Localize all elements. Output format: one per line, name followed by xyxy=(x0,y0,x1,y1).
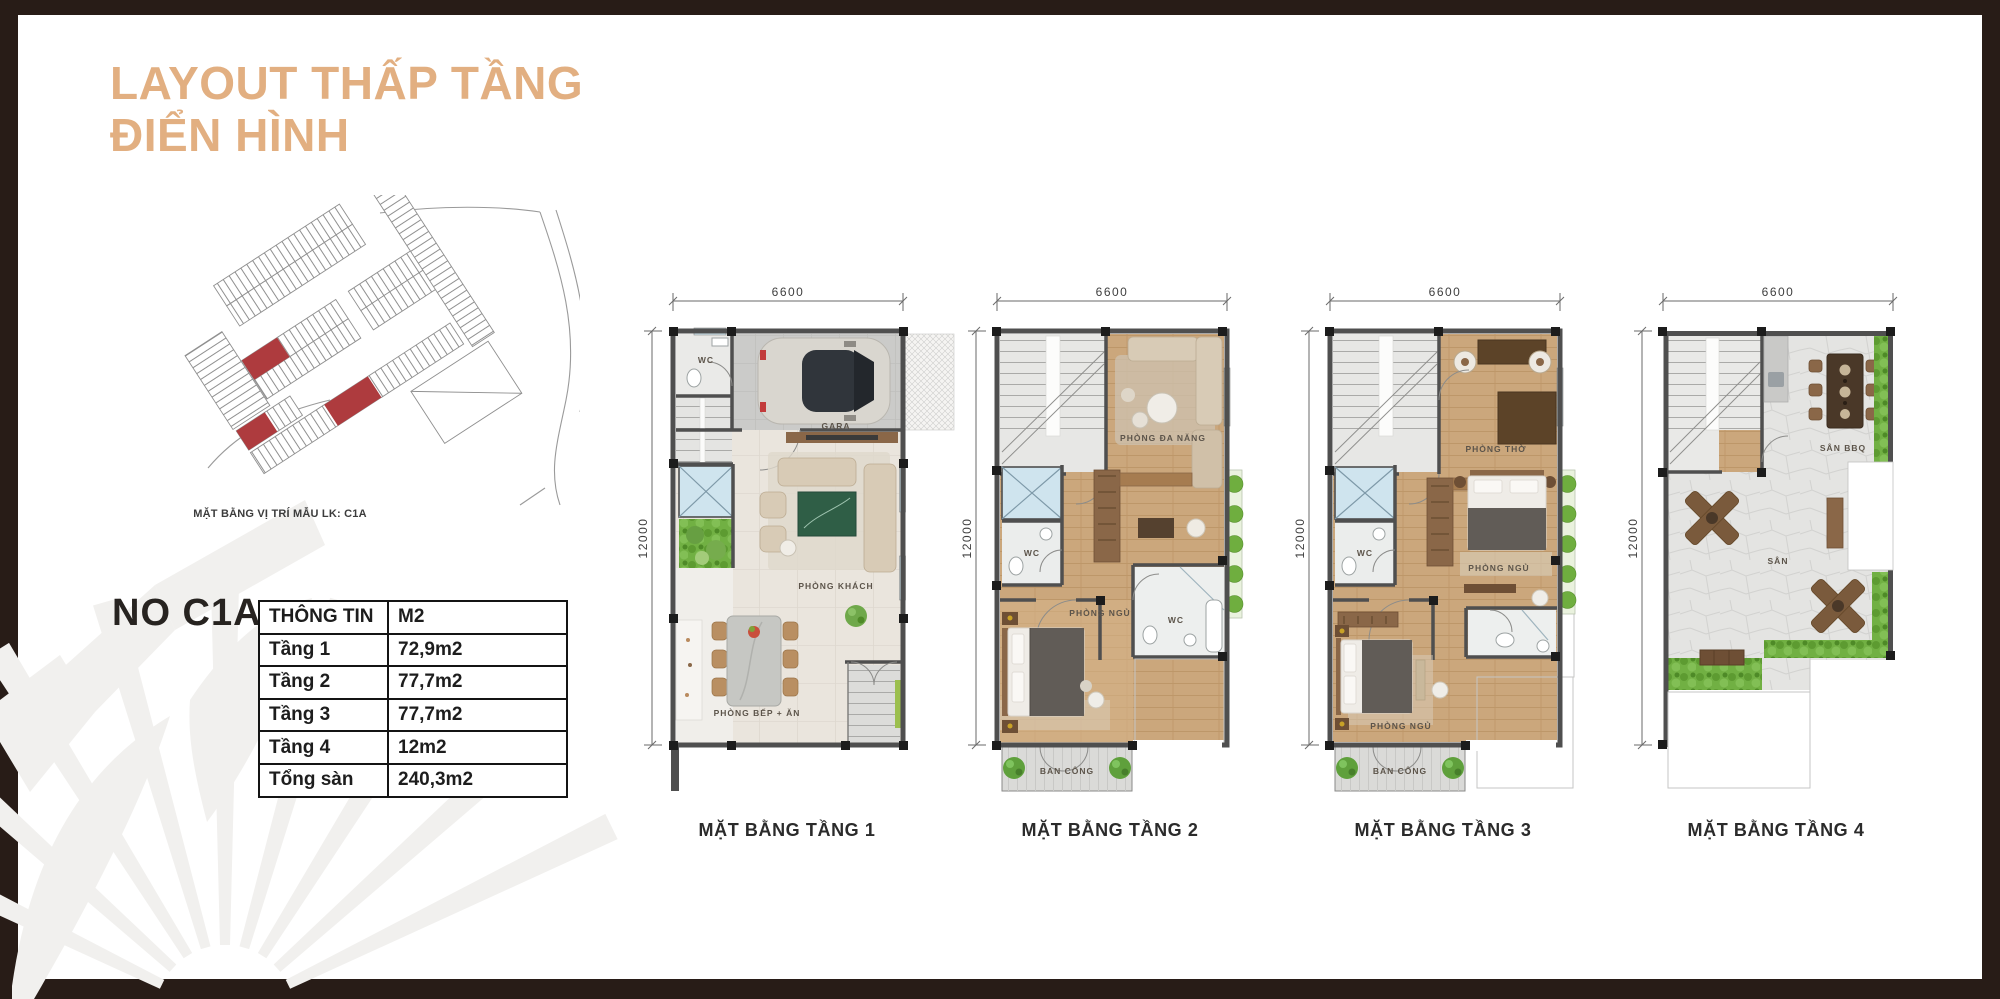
dim-width: 6600 xyxy=(1429,285,1462,299)
row-value: 77,7m2 xyxy=(388,699,567,732)
dim-height: 12000 xyxy=(1626,518,1640,559)
row-label: Tầng 2 xyxy=(259,666,388,699)
floor-plan-1: 6600 12000 xyxy=(630,275,960,795)
row-value: 240,3m2 xyxy=(388,764,567,797)
page-title-line2: ĐIỂN HÌNH xyxy=(110,110,583,162)
room-label-gara: GARA xyxy=(821,421,850,431)
car-top-view xyxy=(758,338,890,424)
room-label-kitchen: PHÒNG BẾP + ĂN xyxy=(714,707,801,718)
dim-width: 6600 xyxy=(772,285,805,299)
void-notch xyxy=(1848,462,1893,570)
dim-height: 12000 xyxy=(960,518,974,559)
plan-caption-floor-1: MẶT BẰNG TẦNG 1 xyxy=(657,820,917,841)
site-location-map xyxy=(150,195,580,515)
planter-box xyxy=(1827,498,1843,548)
room-label-yard: SÂN xyxy=(1768,555,1789,566)
slide-canvas: LAYOUT THẤP TẦNG ĐIỂN HÌNH xyxy=(0,0,2000,999)
row-value: 77,7m2 xyxy=(388,666,567,699)
plan-caption-floor-3: MẶT BẰNG TẦNG 3 xyxy=(1313,820,1573,841)
room-label-balcony: BAN CÔNG xyxy=(1040,765,1094,776)
dining-set xyxy=(712,616,798,706)
coffee-table xyxy=(798,492,856,536)
room-label-balcony: BAN CÔNG xyxy=(1373,765,1427,776)
counter xyxy=(1764,336,1788,402)
table-row: Tầng 4 12m2 xyxy=(259,731,567,764)
wardrobe xyxy=(1094,470,1120,562)
bbq-dining-set xyxy=(1809,354,1879,428)
potted-plant xyxy=(845,605,867,627)
row-value: 72,9m2 xyxy=(388,634,567,667)
room-label-bedroom-mid: PHÒNG NGỦ xyxy=(1468,562,1529,573)
floor-plan-4: 6600 12000 xyxy=(1618,275,1952,795)
table-row: Tầng 1 72,9m2 xyxy=(259,634,567,667)
floor-plan-3: 6600 12000 xyxy=(1285,275,1615,795)
room-label-wc: WC xyxy=(698,355,714,365)
wardrobe xyxy=(1427,478,1453,566)
site-map-caption: MẶT BẰNG VỊ TRÍ MẪU LK: C1A xyxy=(158,508,402,520)
toilet xyxy=(687,369,701,387)
room-label-multi: PHÒNG ĐA NĂNG xyxy=(1120,432,1206,443)
room-label-bedroom-bottom: PHÒNG NGỦ xyxy=(1370,720,1431,731)
area-info-table: THÔNG TIN M2 Tầng 1 72,9m2 Tầng 2 77,7m2… xyxy=(258,600,568,798)
row-label: Tầng 1 xyxy=(259,634,388,667)
row-label: Tầng 4 xyxy=(259,731,388,764)
hedge-horizontal xyxy=(1764,640,1891,658)
dim-height: 12000 xyxy=(1293,518,1307,559)
floor-plan-2: 6600 12000 xyxy=(955,275,1285,795)
table-row: Tổng sàn 240,3m2 xyxy=(259,764,567,797)
wc-right xyxy=(1133,565,1224,657)
page-title-line1: LAYOUT THẤP TẦNG xyxy=(110,58,583,110)
sofa xyxy=(864,464,896,572)
row-label: Tổng sàn xyxy=(259,764,388,797)
dim-height: 12000 xyxy=(636,518,650,559)
room-label-living: PHÒNG KHÁCH xyxy=(798,580,873,591)
room-label-wc-right: WC xyxy=(1168,615,1184,625)
room-label-wc-left: WC xyxy=(1024,548,1040,558)
page-title: LAYOUT THẤP TẦNG ĐIỂN HÌNH xyxy=(110,58,583,161)
header-thong-tin: THÔNG TIN xyxy=(259,601,388,634)
room-label-bedroom: PHÒNG NGỦ xyxy=(1069,607,1130,618)
tv-cabinet xyxy=(1138,518,1174,538)
row-label: Tầng 3 xyxy=(259,699,388,732)
site-map-blocks xyxy=(161,195,531,515)
unit-name: NO C1A xyxy=(112,592,262,635)
bench xyxy=(1700,650,1744,665)
room-label-worship: PHÒNG THỜ xyxy=(1465,443,1526,454)
table-row: Tầng 2 77,7m2 xyxy=(259,666,567,699)
plan-caption-floor-2: MẶT BẰNG TẦNG 2 xyxy=(980,820,1240,841)
dim-width: 6600 xyxy=(1096,285,1129,299)
plan-caption-floor-4: MẶT BẰNG TẦNG 4 xyxy=(1646,820,1906,841)
room-label-bbq: SÂN BBQ xyxy=(1820,442,1866,453)
dim-width: 6600 xyxy=(1762,285,1795,299)
row-value: 12m2 xyxy=(388,731,567,764)
table-header-row: THÔNG TIN M2 xyxy=(259,601,567,634)
kitchen-counter xyxy=(676,620,702,720)
header-m2: M2 xyxy=(388,601,567,634)
table-row: Tầng 3 77,7m2 xyxy=(259,699,567,732)
wc-bottom xyxy=(1466,608,1557,657)
room-label-wc-left: WC xyxy=(1357,548,1373,558)
